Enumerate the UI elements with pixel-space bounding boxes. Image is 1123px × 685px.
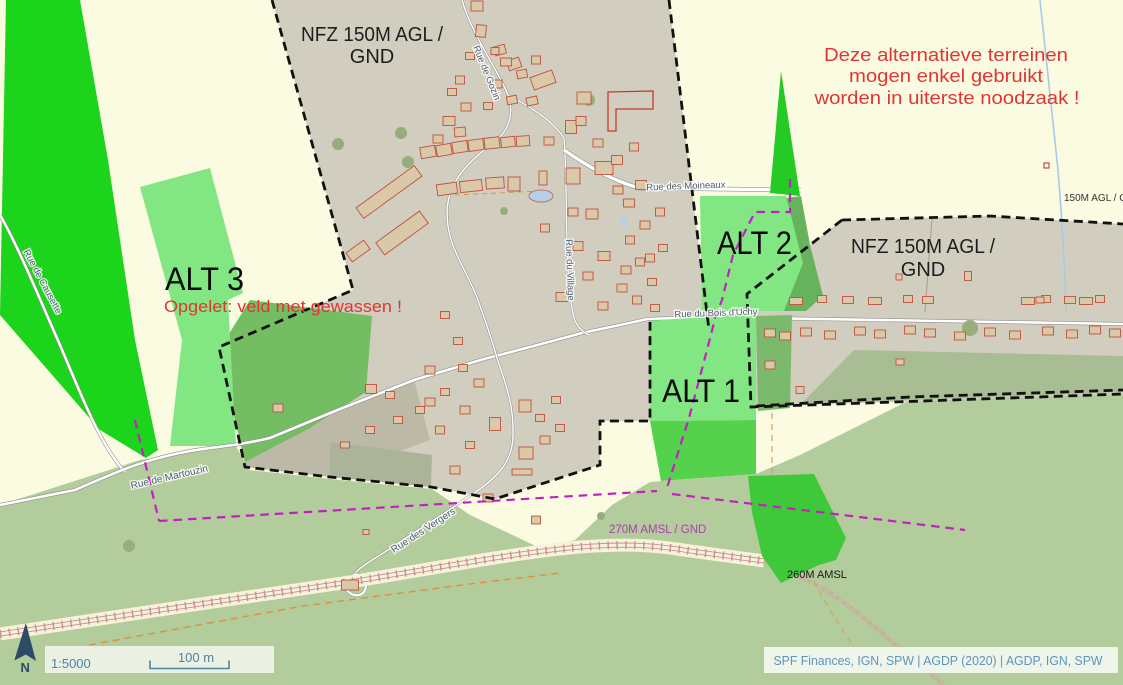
svg-text:N: N	[21, 660, 30, 675]
svg-text:GND: GND	[350, 46, 394, 68]
svg-text:worden in uiterste noodzaak !: worden in uiterste noodzaak !	[813, 87, 1079, 108]
svg-text:NFZ 150M AGL /: NFZ 150M AGL /	[301, 24, 443, 46]
svg-text:270M AMSL / GND: 270M AMSL / GND	[609, 524, 706, 536]
svg-text:Opgelet: veld met gewassen !: Opgelet: veld met gewassen !	[164, 298, 402, 316]
svg-text:mogen enkel gebruikt: mogen enkel gebruikt	[849, 65, 1043, 86]
svg-text:150M AGL / G: 150M AGL / G	[1064, 193, 1123, 204]
svg-text:SPF Finances, IGN, SPW | AGDP: SPF Finances, IGN, SPW | AGDP (2020) | A…	[774, 653, 1104, 668]
svg-text:100 m: 100 m	[178, 650, 214, 665]
svg-text:Deze alternatieve terreinen: Deze alternatieve terreinen	[824, 44, 1068, 65]
svg-text:ALT 2: ALT 2	[717, 225, 792, 261]
svg-text:1:5000: 1:5000	[51, 656, 91, 671]
svg-text:GND: GND	[901, 259, 945, 281]
svg-text:Rue du Village: Rue du Village	[563, 239, 576, 301]
svg-text:ALT 1: ALT 1	[662, 373, 740, 409]
svg-text:ALT 3: ALT 3	[165, 261, 244, 297]
svg-text:260M AMSL: 260M AMSL	[787, 569, 847, 581]
svg-text:NFZ 150M AGL /: NFZ 150M AGL /	[851, 236, 995, 258]
